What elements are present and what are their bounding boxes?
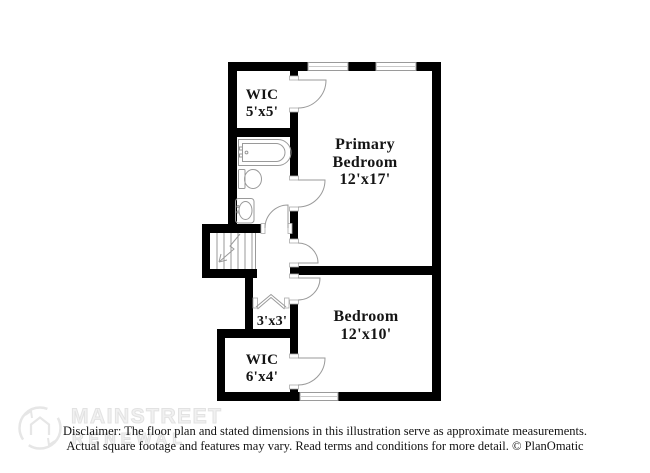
door-swing-icon	[298, 243, 318, 263]
room-label-wic-lower: WIC 6'x4'	[222, 352, 302, 385]
disclaimer: Disclaimer: The floor plan and stated di…	[0, 424, 650, 454]
room-name: Bedroom	[306, 308, 426, 326]
window-icon	[308, 63, 348, 71]
room-dims: 12'x17'	[315, 171, 415, 189]
toilet-icon	[239, 170, 262, 189]
door-swing-icon	[298, 358, 325, 385]
floor-plan-drawing	[0, 0, 650, 473]
room-name: WIC	[222, 352, 302, 369]
room-name: WIC	[222, 87, 302, 104]
sink-icon	[236, 199, 255, 224]
room-dims: 12'x10'	[306, 326, 426, 344]
room-label-primary-bedroom: Primary Bedroom 12'x17'	[315, 136, 415, 189]
room-dims: 5'x5'	[222, 104, 302, 121]
door-swing-icon	[298, 80, 326, 108]
room-label-bedroom: Bedroom 12'x10'	[306, 308, 426, 343]
disclaimer-line-2: Actual square footage and features may v…	[0, 439, 650, 454]
room-label-wic-upper: WIC 5'x5'	[222, 87, 302, 120]
bathtub-icon	[239, 140, 292, 166]
room-dims: 3'x3'	[242, 314, 302, 329]
room-name: Primary Bedroom	[315, 136, 415, 171]
room-dims: 6'x4'	[222, 369, 302, 386]
door-swing-icon	[298, 278, 320, 300]
windows	[300, 63, 416, 401]
window-icon	[300, 393, 338, 401]
bifold-door-icon	[256, 295, 286, 310]
window-icon	[376, 63, 416, 71]
floor-plan-page: MAINSTREET RENEWAL	[0, 0, 650, 473]
disclaimer-line-1: Disclaimer: The floor plan and stated di…	[0, 424, 650, 439]
staircase-icon	[217, 233, 256, 269]
room-label-closet: 3'x3'	[242, 314, 302, 329]
door-swing-icon	[265, 205, 288, 228]
